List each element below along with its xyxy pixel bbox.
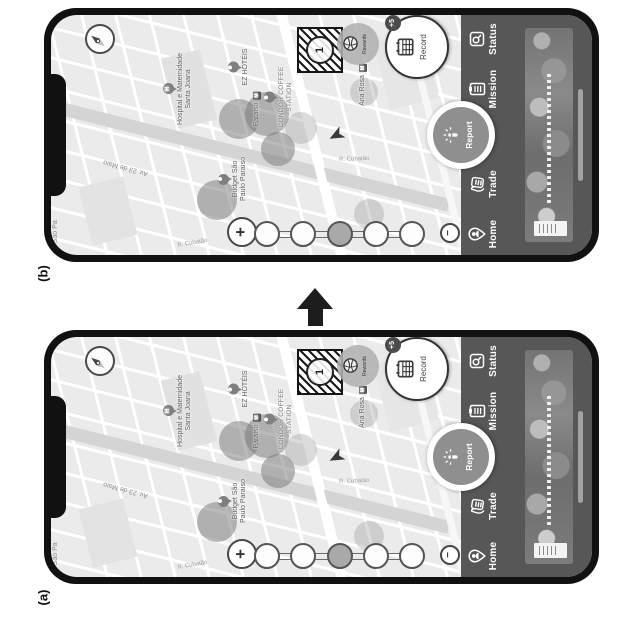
zoom-out-button[interactable]: −: [440, 223, 460, 243]
figure-canvas: ral São Pa Av. 23 de Maio R. Cubatão R. …: [0, 0, 640, 640]
rewards-button[interactable]: Rewards: [337, 345, 379, 387]
hospital-pin-icon: H: [163, 406, 174, 417]
report-flare-icon: [441, 125, 461, 145]
trade-hand-icon: [467, 496, 487, 516]
nav-item-status[interactable]: Status: [465, 338, 499, 384]
poi-hospital: H Hospital e Maternidade Santa Joana: [163, 53, 193, 125]
figure-caption-a: (a): [36, 585, 51, 611]
poi-ez-hotels: EZ HOTÉIS: [227, 49, 250, 86]
report-label: Report: [464, 107, 474, 163]
zoom-in-button[interactable]: +: [227, 217, 257, 247]
trade-hand-icon: [467, 174, 487, 194]
ad-banner-tag: [534, 221, 567, 236]
zoom-level-dot: [327, 543, 353, 569]
report-flare-icon: [441, 447, 461, 467]
ad-banner[interactable]: [525, 28, 573, 242]
zoom-level-dot: [327, 221, 353, 247]
ad-banner-text: [547, 71, 551, 204]
home-indicator[interactable]: [578, 89, 583, 181]
zoom-level-dot: [254, 543, 280, 569]
mission-clipboard-icon: [467, 79, 487, 99]
home-indicator[interactable]: [578, 411, 583, 503]
ball-icon: [342, 36, 359, 53]
zoom-in-button[interactable]: +: [227, 539, 257, 569]
rewards-label: Rewards: [362, 345, 368, 387]
calendar-icon: [394, 36, 416, 58]
record-badge: +5: [385, 337, 401, 353]
poi-budget-hotel: Budget São Paulo Paraíso: [217, 479, 248, 523]
record-label: Record: [419, 339, 428, 399]
rewards-label: Rewards: [362, 23, 368, 65]
zoom-level-dot: [363, 221, 389, 247]
mission-clipboard-icon: [467, 401, 487, 421]
nav-item-home[interactable]: Home: [465, 533, 499, 577]
figure-caption-b: (b): [36, 261, 51, 287]
zoom-level-dot: [399, 543, 425, 569]
map-street-label: R. Cubatão: [339, 478, 370, 485]
phone-screenshot-a: ral São Pa Av. 23 de Maio R. Cubatão R. …: [44, 330, 599, 584]
metro-icon: M: [359, 386, 367, 394]
nav-item-status[interactable]: Status: [465, 16, 499, 62]
poi-condor-coffee: CONDOR COFFEE STATION: [263, 389, 294, 450]
status-search-icon: [467, 29, 487, 49]
coffee-pin-icon: [264, 92, 275, 103]
report-label: Report: [464, 429, 474, 485]
coffee-pin-icon: [264, 414, 275, 425]
poi-budget-hotel: Budget São Paulo Paraíso: [217, 157, 248, 201]
record-badge: +5: [385, 15, 401, 31]
calendar-icon: [394, 358, 416, 380]
phone-notch: [51, 74, 66, 196]
report-button[interactable]: Report: [427, 423, 495, 491]
poi-ana-rosa-station: Ana RosaM: [359, 64, 367, 106]
nav-item-trade[interactable]: Trade: [465, 483, 499, 529]
poi-ez-hotels: EZ HOTÉIS: [227, 371, 250, 408]
hospital-pin-icon: H: [163, 84, 174, 95]
rewards-button[interactable]: Rewards: [337, 23, 379, 65]
map-edge-label: ral São Pa: [52, 542, 59, 575]
hotel-pin-icon: [228, 62, 239, 73]
zoom-out-button[interactable]: −: [440, 545, 460, 565]
nav-item-home[interactable]: Home: [465, 211, 499, 255]
phone-screenshot-b: ral São Pa Av. 23 de Maio R. Cubatão R. …: [44, 8, 599, 262]
record-label: Record: [419, 17, 428, 77]
phone-frame: ral São Pa Av. 23 de Maio R. Cubatão R. …: [44, 8, 599, 262]
metro-icon: M: [253, 91, 261, 99]
transition-arrow-up-icon: [297, 288, 333, 328]
map-block: [78, 498, 137, 567]
poi-paraiso-station: ParaísoM: [253, 413, 261, 448]
report-button[interactable]: Report: [427, 101, 495, 169]
record-button[interactable]: Record +5: [385, 337, 449, 401]
zoom-level-dot: [254, 221, 280, 247]
map-avenue-label: Av. 23 de Maio: [103, 158, 149, 177]
ad-banner-tag: [534, 543, 567, 558]
map-edge-label: ral São Pa: [52, 220, 59, 253]
compass-icon[interactable]: [85, 346, 115, 376]
ad-banner-text: [547, 393, 551, 526]
coin-icon: 1: [306, 358, 334, 386]
poi-ana-rosa-station: Ana RosaM: [359, 386, 367, 428]
phone-screen: ral São Pa Av. 23 de Maio R. Cubatão R. …: [51, 337, 592, 577]
metro-icon: M: [359, 64, 367, 72]
ad-banner[interactable]: [525, 350, 573, 564]
home-pin-icon: [467, 546, 487, 566]
phone-notch: [51, 396, 66, 518]
hotel-pin-icon: [218, 496, 229, 507]
ball-icon: [342, 358, 359, 375]
poi-paraiso-station: ParaísoM: [253, 91, 261, 126]
phone-frame: ral São Pa Av. 23 de Maio R. Cubatão R. …: [44, 330, 599, 584]
metro-icon: M: [253, 413, 261, 421]
map-street-label: R. Cubatão: [339, 156, 370, 163]
compass-icon[interactable]: [85, 24, 115, 54]
hotel-pin-icon: [218, 174, 229, 185]
hotel-pin-icon: [228, 384, 239, 395]
record-button[interactable]: Record +5: [385, 15, 449, 79]
coin-icon: 1: [306, 36, 334, 64]
zoom-level-dot: [363, 543, 389, 569]
phone-screen: ral São Pa Av. 23 de Maio R. Cubatão R. …: [51, 15, 592, 255]
poi-condor-coffee: CONDOR COFFEE STATION: [263, 67, 294, 128]
poi-hospital: H Hospital e Maternidade Santa Joana: [163, 375, 193, 447]
map-avenue-label: Av. 23 de Maio: [103, 480, 149, 499]
nav-item-trade[interactable]: Trade: [465, 161, 499, 207]
map-block: [78, 176, 137, 245]
zoom-level-dot: [399, 221, 425, 247]
status-search-icon: [467, 351, 487, 371]
home-pin-icon: [467, 224, 487, 244]
